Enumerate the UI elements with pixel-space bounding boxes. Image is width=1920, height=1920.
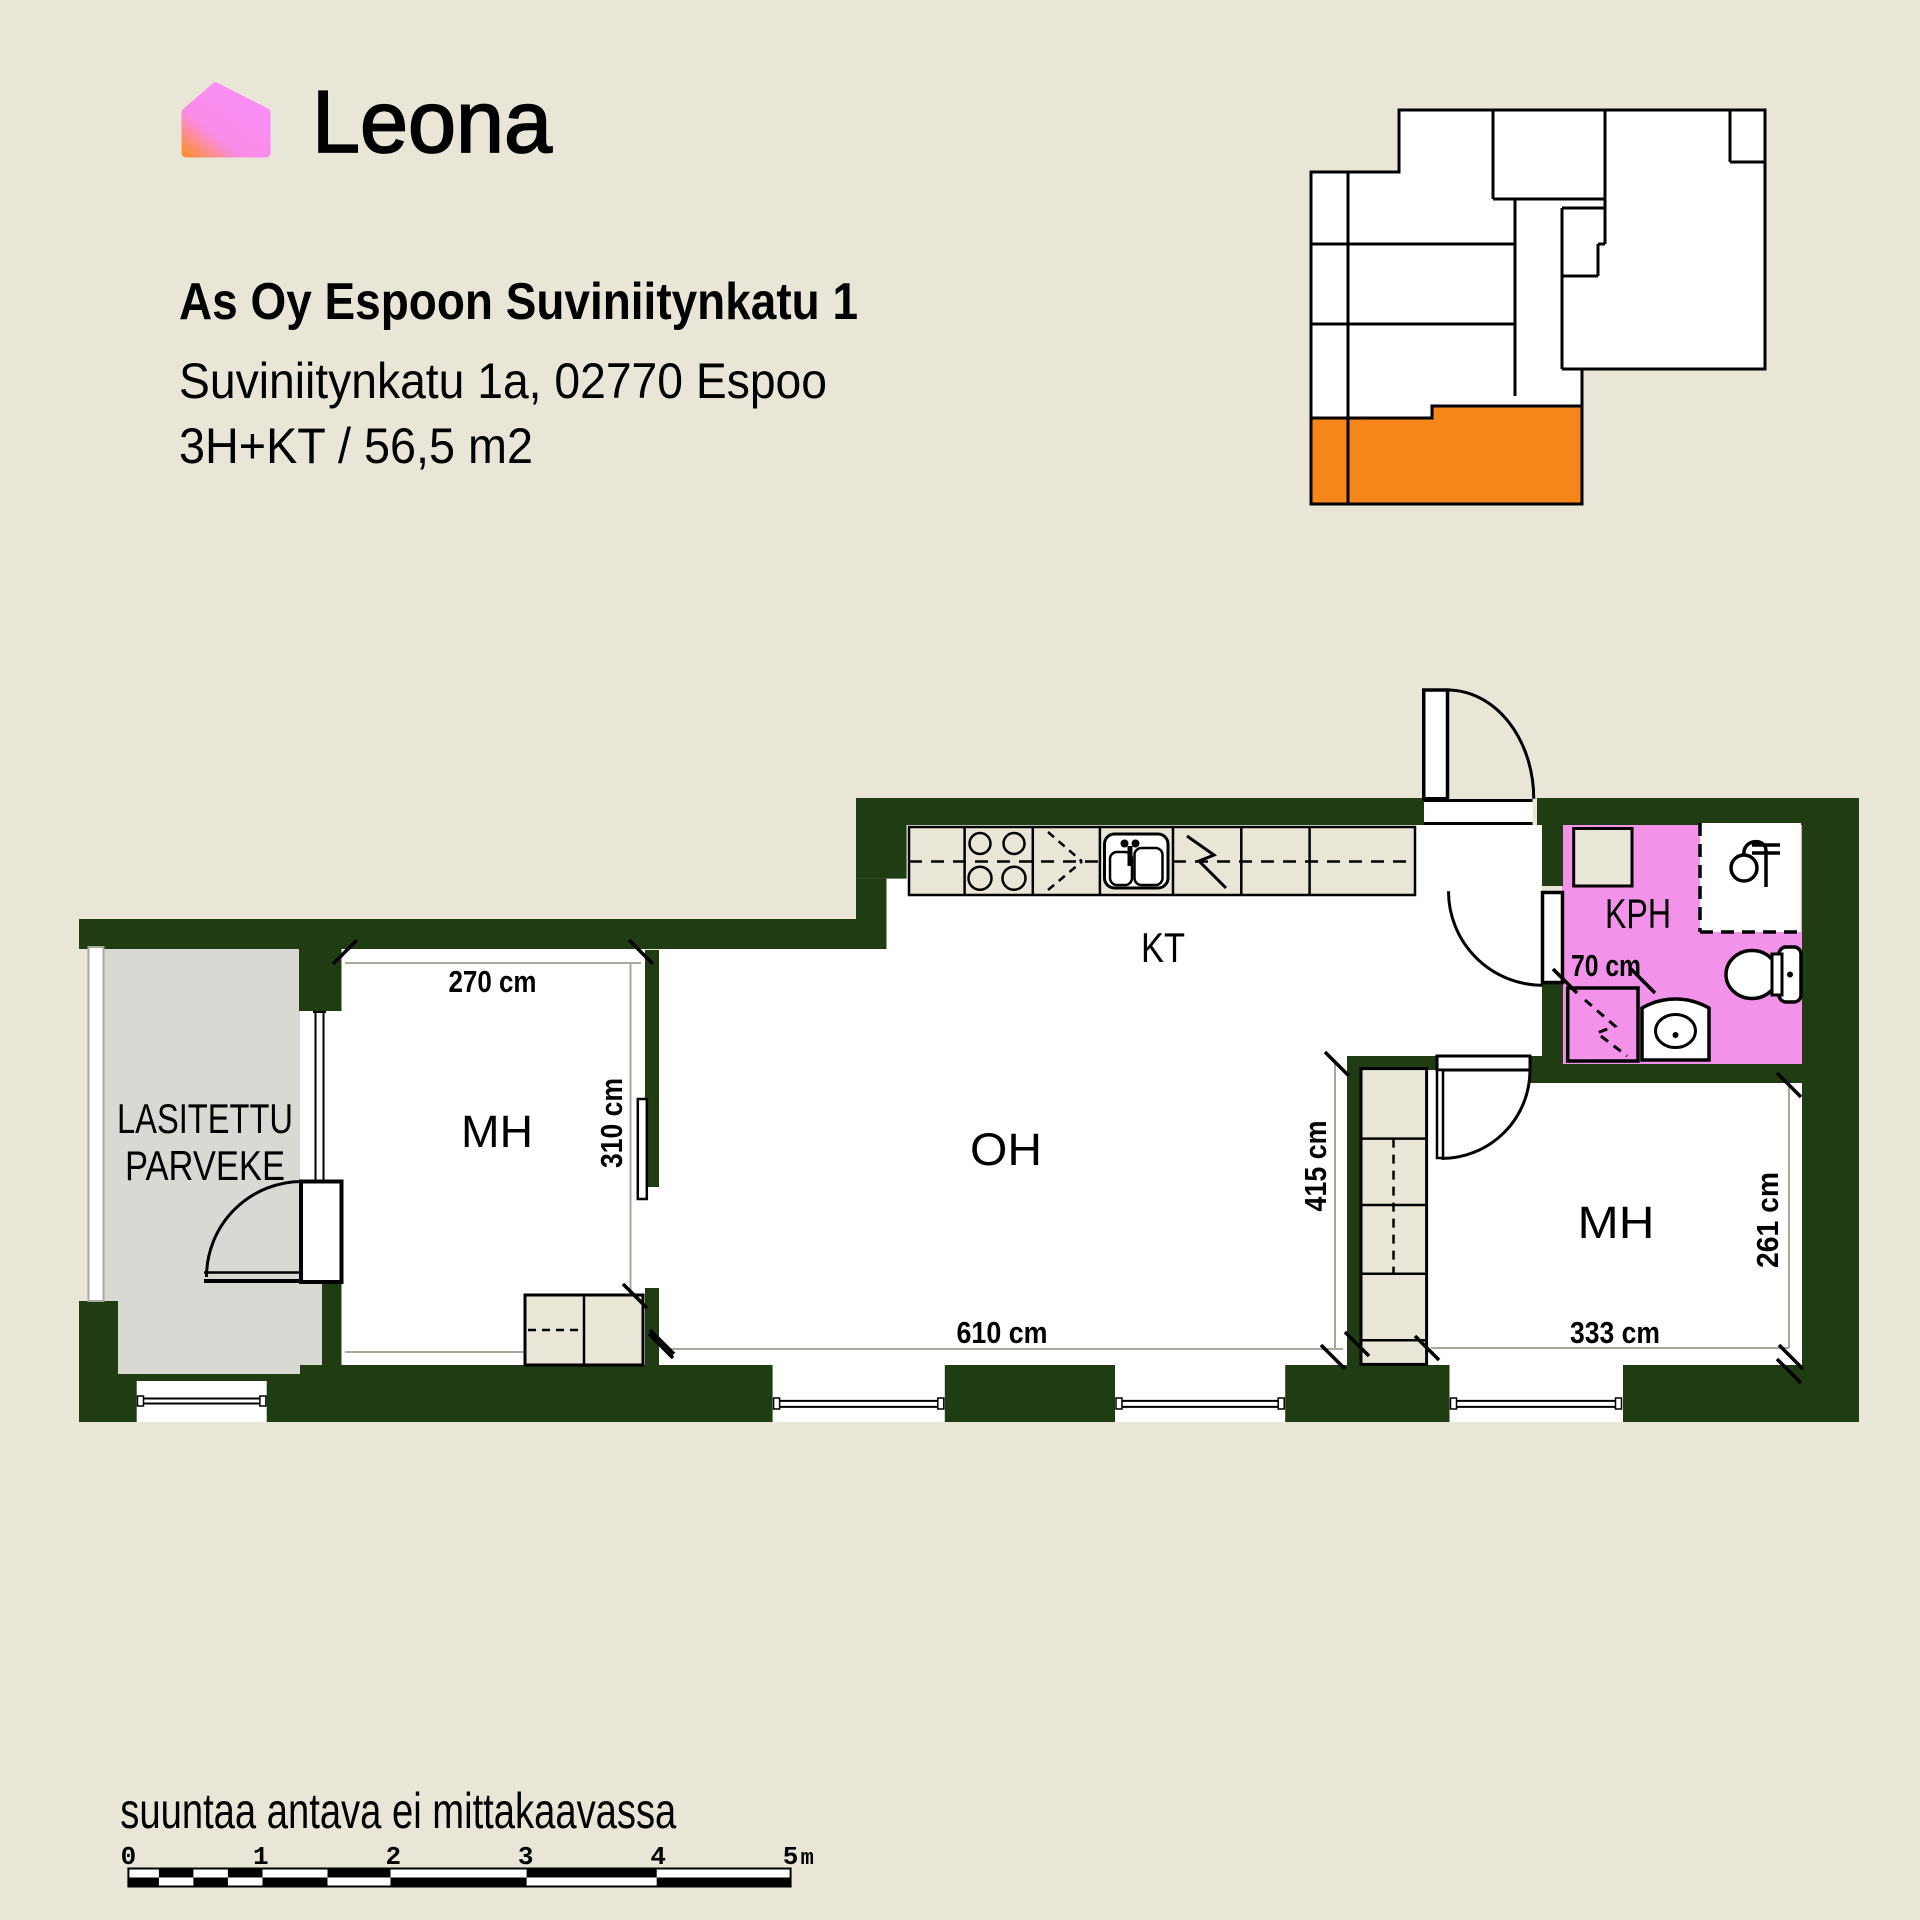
svg-text:333 cm: 333 cm — [1570, 1315, 1660, 1350]
svg-text:2: 2 — [385, 1842, 401, 1872]
svg-text:5: 5 — [783, 1842, 799, 1872]
svg-text:3: 3 — [518, 1842, 534, 1872]
svg-text:KT: KT — [1141, 924, 1185, 971]
svg-text:1: 1 — [253, 1842, 269, 1872]
svg-text:MH: MH — [1578, 1197, 1655, 1248]
svg-text:Leona: Leona — [312, 72, 552, 171]
svg-text:261 cm: 261 cm — [1750, 1172, 1785, 1268]
svg-text:MH: MH — [461, 1106, 533, 1157]
svg-text:4: 4 — [650, 1842, 666, 1872]
svg-text:As Oy Espoon Suviniitynkatu 1: As Oy Espoon Suviniitynkatu 1 — [179, 273, 858, 331]
svg-text:0: 0 — [121, 1842, 137, 1872]
svg-text:LASITETTU: LASITETTU — [117, 1095, 293, 1142]
svg-text:3H+KT / 56,5 m2: 3H+KT / 56,5 m2 — [179, 418, 533, 474]
svg-text:415 cm: 415 cm — [1298, 1121, 1333, 1212]
svg-text:Suviniitynkatu 1a, 02770 Espoo: Suviniitynkatu 1a, 02770 Espoo — [179, 353, 827, 409]
svg-text:KPH: KPH — [1605, 890, 1671, 937]
svg-text:PARVEKE: PARVEKE — [125, 1142, 285, 1189]
svg-text:270 cm: 270 cm — [449, 964, 537, 999]
svg-text:610 cm: 610 cm — [957, 1315, 1048, 1350]
svg-text:70 cm: 70 cm — [1571, 948, 1641, 983]
svg-text:m: m — [801, 1846, 814, 1871]
svg-text:310 cm: 310 cm — [594, 1078, 629, 1168]
svg-text:suuntaa antava ei mittakaavass: suuntaa antava ei mittakaavassa — [120, 1783, 676, 1839]
svg-text:OH: OH — [970, 1124, 1042, 1175]
